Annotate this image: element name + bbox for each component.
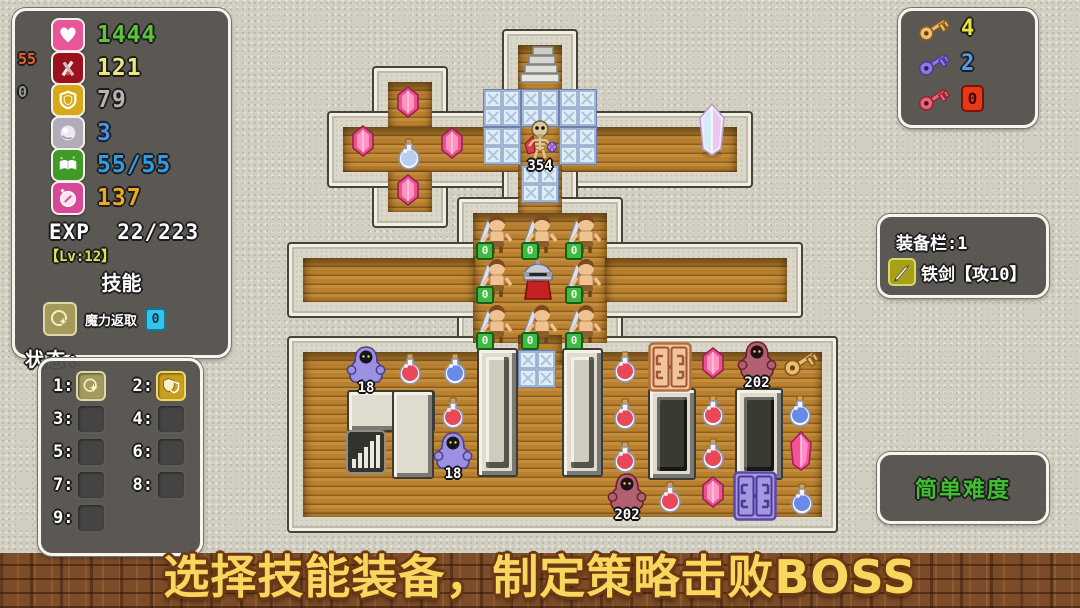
- yellow-key-count: 4: [961, 16, 974, 41]
- slot-1-magic-icon[interactable]: [76, 371, 106, 401]
- soldier-enemy[interactable]: 0: [563, 214, 601, 256]
- stat-row-hp: 1444: [15, 19, 228, 52]
- blue-key-row: 2: [901, 46, 1035, 81]
- yellow-key-item[interactable]: [781, 346, 819, 380]
- enemy-damage-badge: 0: [476, 286, 494, 304]
- slot-6-number: 6:: [133, 442, 153, 462]
- skill-slot-2[interactable]: 2:: [121, 371, 201, 401]
- enemy-damage-badge: 0: [565, 332, 583, 350]
- enemy-hp-label: 202: [614, 508, 639, 522]
- skill-slot-7[interactable]: 7:: [41, 470, 121, 500]
- slot-6-empty[interactable]: [156, 437, 186, 467]
- skill-slots-panel: 1: 2: 3: 4: 5: 6: 7: 8: 9:: [38, 358, 203, 556]
- slot-2-guard-icon[interactable]: [156, 371, 186, 401]
- skill-slot-3[interactable]: 3:: [41, 404, 121, 434]
- slot-9-number: 9:: [53, 508, 73, 528]
- level-badge: 【Lv:12】: [15, 246, 228, 266]
- difficulty-button[interactable]: 简单难度: [877, 452, 1049, 524]
- orange-door[interactable]: [648, 342, 692, 392]
- pink-gem-item[interactable]: [351, 125, 375, 157]
- stairs-down[interactable]: [346, 430, 386, 474]
- wall-pillar: [392, 390, 434, 479]
- difficulty-label: 简单难度: [915, 472, 1011, 504]
- right-corridor-floor[interactable]: [605, 258, 787, 302]
- defense-value: 79: [97, 87, 127, 113]
- pillar-inset: [571, 357, 594, 468]
- enemy-hp-label: 354: [527, 159, 552, 173]
- pillar-inset: [657, 397, 687, 471]
- exp-label: EXP: [49, 220, 90, 244]
- pink-gem-item[interactable]: [701, 476, 725, 508]
- exp-value: 22/223: [117, 220, 199, 244]
- slot-9-empty[interactable]: [76, 503, 106, 533]
- red-potion-item[interactable]: [440, 397, 466, 431]
- pink-crystal-item[interactable]: [789, 431, 813, 471]
- ice-tile[interactable]: [483, 127, 521, 165]
- red-potion-item[interactable]: [612, 441, 638, 475]
- hp-value: 1444: [97, 22, 156, 48]
- yellow-key-row: 4: [901, 11, 1035, 46]
- stairs-up[interactable]: [518, 44, 562, 84]
- skeleton-enemy[interactable]: 354: [521, 120, 559, 164]
- enemy-damage-badge: 0: [521, 332, 539, 350]
- skill-row[interactable]: 魔力返取 0: [15, 302, 228, 336]
- slot-2-number: 2:: [133, 376, 153, 396]
- skill-slot-1[interactable]: 1:: [41, 371, 121, 401]
- skill-slot-8[interactable]: 8:: [121, 470, 201, 500]
- equipment-title: 装备栏:1: [880, 217, 1046, 254]
- red-potion-item[interactable]: [397, 353, 423, 387]
- slot-8-empty[interactable]: [156, 470, 186, 500]
- stat-row-attack: 121: [15, 52, 228, 85]
- red-key-icon: [915, 84, 951, 114]
- pink-gem-item[interactable]: [396, 86, 420, 118]
- slot-3-number: 3:: [53, 409, 73, 429]
- pink-gem-item[interactable]: [701, 347, 725, 379]
- skill-section-title: 技能: [15, 267, 228, 296]
- slot-7-number: 7:: [53, 475, 73, 495]
- red-key-count-badge: 0: [961, 85, 984, 112]
- soldier-enemy[interactable]: 0: [474, 304, 512, 346]
- red-key-row: 0: [901, 81, 1035, 116]
- red-potion-item[interactable]: [700, 395, 726, 429]
- soldier-enemy[interactable]: 0: [563, 258, 601, 300]
- orb-icon: [51, 116, 85, 150]
- stat-row-mana-book: 55/55: [15, 149, 228, 182]
- enemy-hp-label: 18: [358, 381, 375, 395]
- ice-tile[interactable]: [518, 350, 556, 388]
- enemy-hp-label: 18: [445, 467, 462, 481]
- skill-slot-9[interactable]: 9:: [41, 503, 121, 533]
- soldier-enemy[interactable]: 0: [563, 304, 601, 346]
- soldier-enemy[interactable]: 0: [519, 214, 557, 256]
- enemy-damage-badge: 0: [476, 332, 494, 350]
- coin-value: 137: [97, 185, 142, 211]
- sword-icon: [51, 51, 85, 85]
- shield-icon: [51, 83, 85, 117]
- pink-gem-item[interactable]: [396, 174, 420, 206]
- skill-slot-6[interactable]: 6:: [121, 437, 201, 467]
- slot-4-number: 4:: [133, 409, 153, 429]
- blue-key-count: 2: [961, 51, 974, 76]
- enemy-hp-label: 202: [744, 376, 769, 390]
- red-ghost-enemy[interactable]: 202: [607, 471, 647, 513]
- enemy-damage-badge: 0: [565, 286, 583, 304]
- stat-row-coin: 137: [15, 182, 228, 215]
- stats-panel: 55 0 1444 121 79: [12, 8, 231, 358]
- yellow-key-icon: [915, 14, 951, 44]
- iron-sword-icon: [888, 258, 916, 286]
- red-potion-item[interactable]: [612, 398, 638, 432]
- orb-value: 3: [97, 120, 112, 146]
- ice-tile[interactable]: [559, 127, 597, 165]
- red-potion-item[interactable]: [657, 481, 683, 515]
- player-knight[interactable]: [518, 257, 558, 301]
- blue-key-icon: [915, 49, 951, 79]
- soldier-enemy[interactable]: 0: [474, 214, 512, 256]
- blue-potion-item[interactable]: [789, 483, 815, 517]
- skill-slot-5[interactable]: 5:: [41, 437, 121, 467]
- slot-3-empty[interactable]: [76, 404, 106, 434]
- skill-slot-4[interactable]: 4:: [121, 404, 201, 434]
- purple-door[interactable]: [733, 471, 777, 521]
- equipped-item-name: 铁剑【攻10】: [921, 260, 1026, 285]
- soldier-enemy[interactable]: 0: [519, 304, 557, 346]
- exp-row: EXP 22/223: [15, 220, 228, 244]
- game-stage: 354000000001818202202 55 0 1444 121: [0, 0, 1080, 608]
- wall-pillar: [562, 348, 603, 477]
- heart-icon: [51, 18, 85, 52]
- skill-count-badge: 0: [145, 308, 166, 331]
- wall-pillar: [477, 348, 518, 477]
- slot-8-number: 8:: [133, 475, 153, 495]
- pillar-inset: [744, 397, 774, 471]
- blue-potion-item[interactable]: [787, 395, 813, 429]
- magic-skill-icon[interactable]: [43, 302, 77, 336]
- pink-gem-item[interactable]: [440, 127, 464, 159]
- white-potion-item[interactable]: [396, 138, 422, 172]
- attack-value: 121: [97, 55, 142, 81]
- ice-tile[interactable]: [483, 89, 521, 127]
- keys-panel: 4 2 0: [898, 8, 1038, 128]
- equipment-panel: 装备栏:1 铁剑【攻10】: [877, 214, 1049, 298]
- slot-1-number: 1:: [53, 376, 73, 396]
- rainbow-crystal-item[interactable]: [697, 103, 727, 159]
- red-potion-item[interactable]: [700, 438, 726, 472]
- purple-ghost-enemy[interactable]: 18: [433, 430, 473, 472]
- slot-7-empty[interactable]: [76, 470, 106, 500]
- slot-4-empty[interactable]: [156, 404, 186, 434]
- pillar-inset: [486, 357, 509, 468]
- ice-tile[interactable]: [559, 89, 597, 127]
- attack-bonus-label: 55: [18, 50, 36, 68]
- equipped-item-row[interactable]: 铁剑【攻10】: [880, 258, 1046, 286]
- stat-row-orb: 3: [15, 117, 228, 150]
- skill-name: 魔力返取: [85, 310, 137, 329]
- book-icon: [51, 148, 85, 182]
- left-corridor-floor[interactable]: [303, 258, 475, 302]
- defense-bonus-label: 0: [18, 83, 27, 101]
- mana-value: 55/55: [97, 152, 171, 178]
- banner-text: 选择技能装备，制定策略击败BOSS: [163, 541, 916, 607]
- wall-pillar: [735, 388, 783, 480]
- slot-5-number: 5:: [53, 442, 73, 462]
- red-ghost-enemy[interactable]: 202: [737, 339, 777, 381]
- coin-icon: [51, 181, 85, 215]
- soldier-enemy[interactable]: 0: [474, 258, 512, 300]
- slot-5-empty[interactable]: [76, 437, 106, 467]
- purple-ghost-enemy[interactable]: 18: [346, 344, 386, 386]
- blue-potion-item[interactable]: [442, 353, 468, 387]
- wall-pillar: [648, 388, 696, 480]
- stat-row-defense: 79: [15, 84, 228, 117]
- red-potion-item[interactable]: [612, 351, 638, 385]
